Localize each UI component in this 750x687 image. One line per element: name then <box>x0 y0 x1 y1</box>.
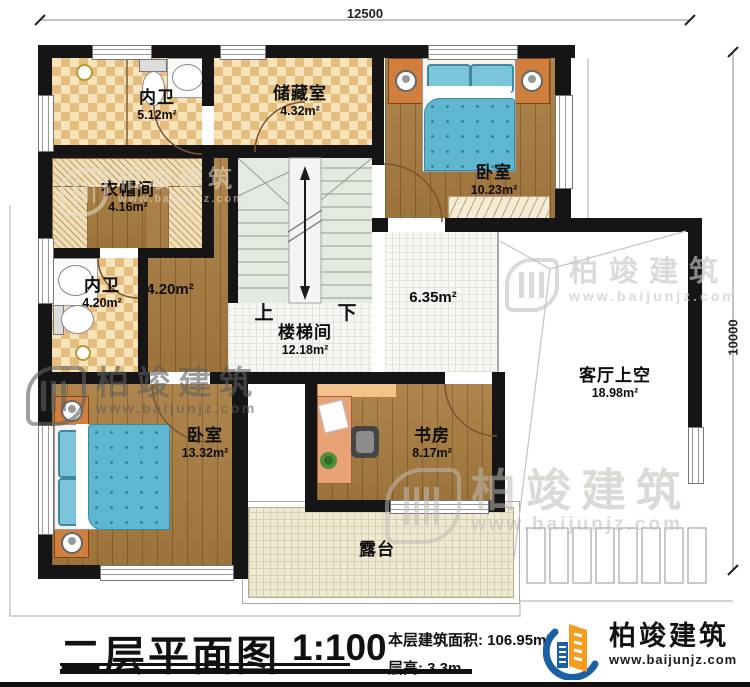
dimension-right: 10000 <box>726 293 741 383</box>
wardrobe-right <box>168 186 204 250</box>
room-name: 露台 <box>347 540 407 560</box>
room-label-cloakroom: 衣帽间 4.16m² <box>83 180 173 214</box>
wall <box>202 58 214 106</box>
drawing-info: 本层建筑面积: 106.95m² 层高: 3.3m <box>388 629 551 685</box>
bed-blanket <box>88 424 170 530</box>
floor-area-row: 本层建筑面积: 106.95m² <box>388 629 551 650</box>
room-name: 书房 <box>387 426 477 446</box>
wall <box>138 248 204 258</box>
room-name: 卧室 <box>160 426 250 446</box>
shower-drain-icon <box>76 64 93 81</box>
window <box>38 95 54 152</box>
window <box>428 45 518 60</box>
brand-url: www.baijunjz.com <box>609 652 737 667</box>
room-label-stairs: 楼梯间 12.18m² <box>250 323 360 357</box>
nightstand <box>54 396 89 426</box>
wall <box>202 158 214 258</box>
lamp-icon <box>521 70 543 92</box>
wall <box>445 218 702 232</box>
wall <box>305 372 317 512</box>
watermark-logo-icon <box>505 258 559 312</box>
window <box>92 45 152 60</box>
chair-seat <box>356 431 374 453</box>
brand-logo-icon <box>543 620 605 680</box>
bed-blanket <box>424 98 515 171</box>
floor-drain-icon <box>75 345 91 361</box>
watermark-url: www.baijunjz.com <box>569 287 738 305</box>
bottom-border <box>0 682 750 687</box>
window <box>390 500 489 514</box>
floor-area-value: 106.95m² <box>487 632 551 649</box>
room-label-void: 客厅上空 18.98m² <box>563 366 667 400</box>
lamp-icon <box>395 70 417 92</box>
desk-chair <box>351 426 379 458</box>
wall <box>305 500 390 512</box>
room-name: 卧室 <box>449 163 539 183</box>
room-label-bedroom2: 卧室 13.32m² <box>160 426 250 460</box>
rug <box>448 196 550 220</box>
room-area: 18.98m² <box>563 386 667 400</box>
wall <box>305 372 445 384</box>
brand-logo: 柏竣建筑 www.baijunjz.com <box>543 620 737 680</box>
wall <box>38 372 150 384</box>
room-area: 12.18m² <box>250 343 360 357</box>
room-name: 衣帽间 <box>83 180 173 200</box>
room-name: 客厅上空 <box>563 366 667 386</box>
window <box>688 427 704 484</box>
wall <box>38 145 384 158</box>
pergola-slats <box>527 528 706 583</box>
wall <box>210 372 248 384</box>
room-label-hall-area: 6.35m² <box>400 289 466 306</box>
wall <box>688 225 702 427</box>
floor-height-row: 层高: 3.3m <box>388 657 551 678</box>
room-label-bedroom1: 卧室 10.23m² <box>449 163 539 197</box>
floor-height-label: 层高: <box>388 660 423 677</box>
window <box>220 45 266 60</box>
stair-up-label: 上 <box>248 298 280 325</box>
void-roof-line <box>500 241 550 269</box>
room-label-storage: 储藏室 4.32m² <box>255 84 345 118</box>
wall <box>228 158 238 303</box>
floor-height-value: 3.3m <box>427 660 461 677</box>
room-label-terrace: 露台 <box>347 540 407 560</box>
room-area: 4.32m² <box>255 104 345 118</box>
sink-basin-icon <box>172 64 203 91</box>
brand-name: 柏竣建筑 <box>609 620 737 652</box>
room-floor-stairs <box>238 158 372 303</box>
watermark: 柏竣建筑 www.baijunjz.com <box>505 258 738 312</box>
plant-icon <box>320 452 337 469</box>
wall <box>372 218 388 232</box>
room-label-bath2: 内卫 4.20m² <box>57 276 147 310</box>
room-name: 储藏室 <box>255 84 345 104</box>
stair-down-label: 下 <box>331 298 363 325</box>
lamp-icon <box>61 400 83 422</box>
window <box>100 565 234 581</box>
wall <box>492 372 505 512</box>
room-area: 4.20m² <box>57 296 147 310</box>
room-label-study: 书房 8.17m² <box>387 426 477 460</box>
nightstand <box>514 58 550 104</box>
wall <box>372 58 384 165</box>
room-label-bath1: 内卫 5.12m² <box>112 88 202 122</box>
room-area: 10.23m² <box>449 183 539 197</box>
room-name: 内卫 <box>57 276 147 296</box>
wall <box>248 372 305 384</box>
nightstand <box>54 528 89 558</box>
room-name: 内卫 <box>112 88 202 108</box>
watermark-name: 柏竣建筑 <box>569 258 738 287</box>
room-area: 5.12m² <box>112 108 202 122</box>
window <box>555 95 573 189</box>
dimension-top: 12500 <box>320 6 410 21</box>
drawing-scale: 1:100 <box>292 627 387 669</box>
room-area: 13.32m² <box>160 446 250 460</box>
lamp-icon <box>61 532 83 554</box>
floor-plan: 12500 10000 内卫 5.12m² 储藏室 4.32m² 卧室 10.2… <box>0 0 750 687</box>
window <box>38 425 54 535</box>
window <box>38 238 54 304</box>
nightstand <box>388 58 424 104</box>
floor-area-label: 本层建筑面积: <box>388 632 483 649</box>
wall <box>232 372 248 579</box>
room-area: 4.16m² <box>83 200 173 214</box>
room-label-hallway-area: 4.20m² <box>140 281 200 298</box>
wall <box>487 500 505 512</box>
room-area: 8.17m² <box>387 446 477 460</box>
room-name: 楼梯间 <box>250 323 360 343</box>
